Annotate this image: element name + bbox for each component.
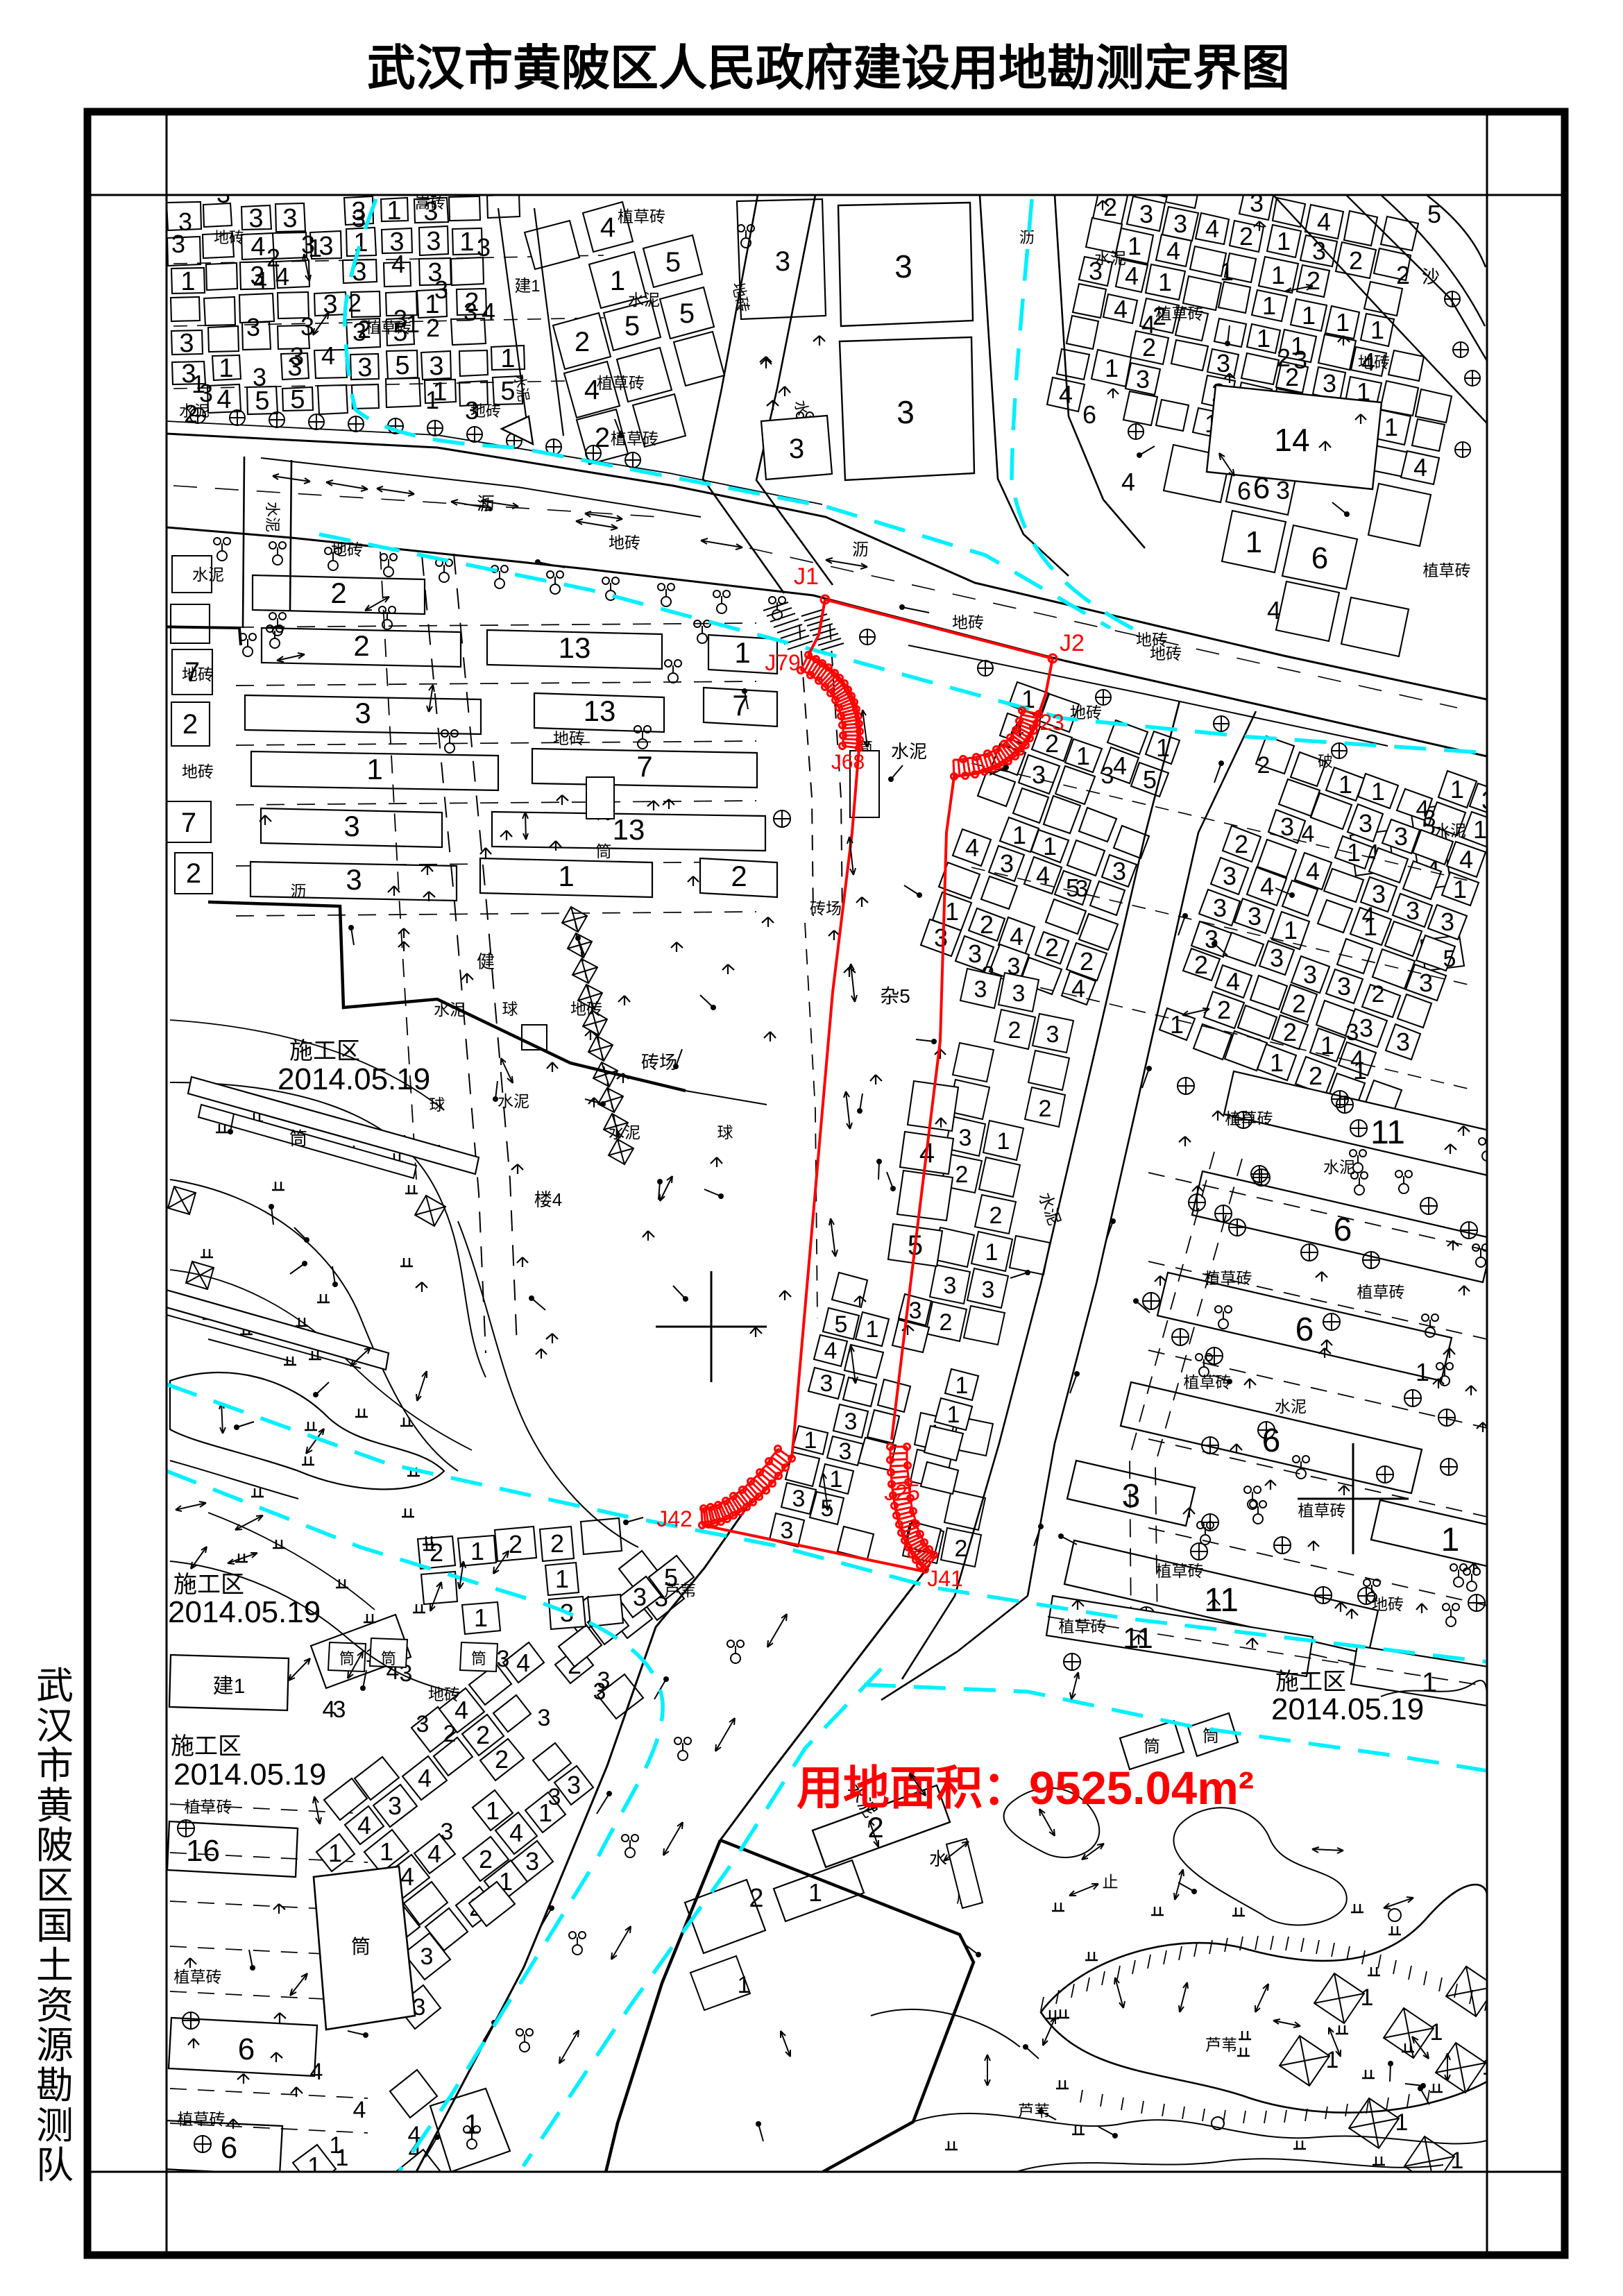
svg-text:陂: 陂: [36, 1825, 74, 1866]
svg-text:2: 2: [443, 1721, 457, 1747]
svg-text:地砖: 地砖: [553, 729, 585, 747]
svg-text:2: 2: [186, 858, 201, 889]
svg-text:4: 4: [509, 1819, 523, 1847]
svg-text:3: 3: [567, 1771, 581, 1799]
svg-text:4: 4: [216, 385, 231, 414]
svg-text:2: 2: [426, 314, 440, 342]
svg-text:2: 2: [1349, 246, 1363, 275]
svg-text:1: 1: [808, 1878, 822, 1907]
svg-text:4: 4: [418, 1764, 432, 1792]
svg-text:3: 3: [388, 1792, 402, 1820]
svg-text:3: 3: [593, 1678, 606, 1705]
svg-text:2014.05.19: 2014.05.19: [278, 1062, 430, 1096]
svg-text:3: 3: [1139, 200, 1153, 228]
svg-text:球: 球: [717, 1123, 733, 1141]
svg-text:建1: 建1: [514, 277, 540, 296]
svg-text:砖场: 砖场: [810, 899, 842, 917]
svg-text:3: 3: [290, 342, 304, 371]
svg-text:2: 2: [940, 1309, 953, 1336]
svg-text:植草砖: 植草砖: [174, 1968, 222, 1986]
svg-text:4: 4: [1362, 903, 1375, 929]
svg-text:4: 4: [516, 1649, 530, 1677]
svg-text:3: 3: [934, 924, 948, 952]
svg-text:2: 2: [1309, 1062, 1323, 1090]
svg-text:4: 4: [391, 250, 405, 278]
svg-text:2014.05.19: 2014.05.19: [1271, 1692, 1424, 1726]
svg-text:4: 4: [1071, 974, 1085, 1003]
svg-text:3: 3: [944, 1273, 957, 1299]
svg-text:4: 4: [1306, 857, 1320, 885]
svg-text:地砖: 地砖: [428, 1685, 460, 1703]
svg-text:3: 3: [1000, 849, 1014, 878]
svg-text:止: 止: [1103, 1873, 1119, 1891]
svg-text:4: 4: [1141, 310, 1155, 339]
svg-text:4: 4: [1459, 845, 1473, 874]
svg-text:3: 3: [968, 939, 982, 968]
svg-text:1: 1: [459, 228, 474, 257]
svg-text:2: 2: [476, 1721, 490, 1749]
svg-text:3: 3: [781, 1517, 794, 1544]
svg-text:植草砖: 植草砖: [1059, 1617, 1107, 1635]
svg-text:破: 破: [1318, 753, 1333, 770]
svg-text:2: 2: [1008, 1017, 1021, 1044]
svg-text:3: 3: [434, 275, 448, 304]
svg-text:2: 2: [495, 1745, 509, 1774]
svg-text:4: 4: [357, 1811, 371, 1839]
svg-text:2: 2: [731, 860, 747, 892]
svg-text:2: 2: [1039, 1096, 1052, 1122]
svg-text:1: 1: [180, 267, 195, 296]
svg-text:13: 13: [613, 813, 645, 846]
svg-text:2: 2: [1080, 947, 1094, 976]
svg-text:植草砖: 植草砖: [1298, 1502, 1346, 1520]
svg-text:2: 2: [182, 709, 198, 740]
svg-text:勘: 勘: [36, 2065, 74, 2107]
svg-text:水泥: 水泥: [891, 741, 927, 762]
svg-text:地砖: 地砖: [182, 763, 214, 781]
svg-text:3: 3: [548, 1784, 561, 1810]
svg-text:3: 3: [839, 1438, 852, 1465]
svg-text:地砖: 地砖: [214, 229, 244, 246]
svg-text:1: 1: [474, 1604, 488, 1632]
svg-text:1: 1: [1012, 821, 1026, 849]
svg-text:1: 1: [1270, 1048, 1284, 1077]
svg-text:1: 1: [1416, 1358, 1429, 1386]
svg-text:筒: 筒: [339, 1650, 355, 1667]
svg-text:3: 3: [909, 1298, 922, 1324]
svg-text:楼4: 楼4: [534, 1189, 562, 1210]
svg-text:3: 3: [1032, 760, 1046, 789]
svg-text:水泥: 水泥: [628, 291, 660, 309]
svg-text:杂5: 杂5: [880, 985, 910, 1007]
svg-text:2: 2: [353, 629, 369, 662]
svg-text:2: 2: [1277, 343, 1291, 372]
svg-text:5: 5: [835, 1311, 848, 1338]
svg-text:3: 3: [1323, 369, 1336, 398]
svg-text:植草砖: 植草砖: [611, 430, 658, 448]
svg-text:1: 1: [1158, 268, 1172, 296]
svg-text:1: 1: [610, 266, 625, 296]
svg-text:J1: J1: [794, 563, 819, 590]
svg-text:14: 14: [1274, 422, 1309, 458]
svg-text:2: 2: [1292, 989, 1306, 1018]
svg-text:1: 1: [219, 354, 233, 383]
svg-text:3: 3: [346, 863, 362, 896]
svg-text:植草砖: 植草砖: [1184, 1373, 1232, 1391]
svg-text:3: 3: [1396, 1028, 1410, 1056]
svg-text:3: 3: [1012, 980, 1026, 1007]
svg-text:3: 3: [1337, 972, 1351, 1001]
svg-text:4: 4: [321, 341, 335, 370]
svg-text:施工区: 施工区: [1275, 1669, 1346, 1695]
svg-text:1: 1: [985, 1239, 999, 1266]
svg-text:4: 4: [353, 2097, 366, 2123]
svg-text:1: 1: [945, 897, 959, 926]
svg-text:3: 3: [1419, 969, 1433, 997]
svg-text:1: 1: [1257, 324, 1271, 352]
svg-text:J25: J25: [884, 1480, 920, 1505]
svg-text:3: 3: [1293, 346, 1307, 374]
svg-text:3: 3: [355, 697, 371, 729]
svg-text:武: 武: [36, 1665, 74, 1707]
svg-text:1: 1: [1450, 775, 1464, 803]
svg-text:3: 3: [1173, 210, 1187, 238]
svg-text:1: 1: [486, 1796, 500, 1825]
svg-text:黄: 黄: [36, 1785, 74, 1827]
svg-text:3: 3: [1303, 960, 1317, 989]
svg-text:砖场: 砖场: [641, 1052, 677, 1073]
svg-text:4: 4: [1166, 237, 1180, 265]
svg-text:1: 1: [734, 636, 750, 669]
svg-text:3: 3: [248, 204, 263, 233]
svg-text:J23: J23: [1028, 710, 1064, 735]
svg-text:6: 6: [1295, 1311, 1314, 1348]
svg-text:4: 4: [824, 1338, 838, 1364]
svg-text:1: 1: [386, 196, 401, 226]
svg-text:11: 11: [1370, 1114, 1405, 1151]
svg-text:水泥: 水泥: [1434, 822, 1466, 840]
svg-text:1: 1: [1339, 770, 1352, 799]
svg-text:3: 3: [959, 1125, 972, 1151]
svg-text:1: 1: [1220, 257, 1234, 286]
svg-text:1: 1: [1105, 354, 1119, 382]
svg-text:1: 1: [1353, 1056, 1367, 1085]
svg-text:2: 2: [749, 1884, 763, 1913]
svg-text:土: 土: [36, 1945, 74, 1987]
svg-text:3: 3: [441, 1819, 454, 1845]
svg-text:3: 3: [282, 204, 297, 233]
svg-text:1: 1: [1170, 1010, 1184, 1039]
svg-text:3: 3: [633, 1583, 647, 1611]
svg-text:1: 1: [1430, 2019, 1443, 2046]
svg-text:6: 6: [221, 2131, 237, 2165]
svg-text:测: 测: [36, 2105, 74, 2147]
svg-text:1: 1: [1277, 227, 1291, 255]
svg-text:4: 4: [1260, 872, 1274, 901]
svg-text:1: 1: [1384, 413, 1398, 441]
svg-text:J79: J79: [765, 650, 801, 675]
svg-text:植草砖: 植草砖: [618, 207, 665, 226]
svg-text:芦苇: 芦苇: [1018, 2102, 1050, 2120]
svg-text:11: 11: [1204, 1582, 1239, 1619]
svg-text:队: 队: [36, 2145, 74, 2186]
svg-text:健: 健: [477, 951, 495, 972]
svg-text:16: 16: [186, 1834, 220, 1868]
svg-text:4: 4: [1114, 295, 1128, 323]
svg-text:沥: 沥: [852, 541, 869, 559]
svg-text:水泥: 水泥: [609, 1123, 640, 1141]
svg-text:2: 2: [980, 910, 994, 939]
svg-text:2: 2: [955, 1162, 969, 1188]
svg-text:3: 3: [1406, 896, 1420, 925]
svg-text:3: 3: [1346, 1019, 1359, 1046]
svg-text:水泥: 水泥: [1094, 249, 1126, 267]
svg-text:1: 1: [1043, 832, 1057, 860]
svg-text:地砖: 地砖: [1358, 353, 1390, 371]
svg-text:3: 3: [1136, 365, 1150, 393]
svg-text:筒: 筒: [289, 1128, 307, 1149]
svg-text:3: 3: [420, 1944, 434, 1970]
svg-text:2: 2: [1217, 996, 1231, 1024]
svg-text:2: 2: [1307, 266, 1320, 295]
svg-text:7: 7: [636, 750, 652, 783]
svg-text:7: 7: [181, 808, 196, 838]
svg-text:2014.05.19: 2014.05.19: [168, 1595, 321, 1629]
svg-text:2: 2: [575, 327, 590, 357]
svg-text:植草砖: 植草砖: [1156, 305, 1204, 323]
svg-text:沥: 沥: [1019, 229, 1035, 246]
svg-text:植草砖: 植草砖: [185, 1798, 232, 1816]
svg-text:4: 4: [965, 833, 979, 862]
svg-text:4: 4: [1121, 468, 1135, 496]
svg-text:2: 2: [1234, 830, 1248, 858]
svg-text:3: 3: [416, 1711, 430, 1737]
svg-text:4: 4: [1302, 821, 1315, 847]
svg-text:5: 5: [1143, 765, 1157, 794]
svg-text:区: 区: [36, 1865, 74, 1907]
svg-text:4: 4: [1267, 596, 1281, 624]
svg-text:1: 1: [380, 1837, 393, 1866]
svg-text:汉: 汉: [36, 1706, 74, 1747]
svg-text:3: 3: [426, 227, 441, 256]
svg-text:3: 3: [789, 434, 804, 464]
svg-text:1: 1: [997, 1128, 1010, 1155]
svg-text:6: 6: [1262, 1422, 1281, 1459]
svg-text:2: 2: [1045, 933, 1059, 962]
svg-text:用地面积：9525.04m²: 用地面积：9525.04m²: [797, 1762, 1254, 1814]
svg-text:J41: J41: [927, 1566, 963, 1591]
svg-text:J68: J68: [831, 751, 865, 774]
svg-text:球: 球: [502, 1000, 518, 1018]
svg-text:3: 3: [820, 1370, 833, 1397]
svg-text:2014.05.19: 2014.05.19: [173, 1758, 326, 1792]
svg-text:3: 3: [792, 1486, 806, 1512]
svg-text:3: 3: [1046, 1021, 1060, 1048]
svg-text:1: 1: [558, 860, 574, 892]
svg-text:资: 资: [36, 1985, 74, 2027]
svg-text:筒: 筒: [471, 1650, 486, 1667]
svg-text:植草砖: 植草砖: [366, 319, 411, 337]
svg-text:水泥: 水泥: [192, 566, 224, 584]
svg-text:3: 3: [464, 298, 477, 326]
svg-text:1: 1: [555, 1565, 569, 1593]
svg-text:2: 2: [1103, 193, 1117, 221]
svg-text:1: 1: [1128, 232, 1141, 260]
svg-text:1: 1: [1451, 2148, 1464, 2174]
svg-text:4: 4: [1413, 453, 1427, 482]
svg-text:1: 1: [1395, 2109, 1409, 2136]
svg-text:4: 4: [1205, 214, 1219, 243]
svg-text:1: 1: [1336, 308, 1350, 337]
svg-text:2: 2: [1372, 981, 1385, 1007]
svg-text:3: 3: [1122, 1478, 1141, 1515]
svg-text:1: 1: [866, 1316, 879, 1343]
svg-text:5: 5: [395, 351, 409, 380]
svg-text:水泥: 水泥: [1275, 1397, 1307, 1415]
svg-text:1: 1: [328, 1839, 342, 1867]
svg-text:1: 1: [1246, 525, 1262, 559]
svg-text:地砖: 地砖: [609, 534, 640, 552]
svg-text:地砖: 地砖: [470, 402, 501, 420]
svg-text:4: 4: [600, 212, 615, 243]
svg-text:6: 6: [1082, 400, 1096, 429]
svg-text:1: 1: [738, 1972, 751, 1998]
svg-text:1: 1: [1262, 291, 1276, 320]
svg-text:建1: 建1: [213, 1675, 246, 1698]
svg-text:3: 3: [1223, 862, 1237, 890]
svg-text:4: 4: [1226, 967, 1240, 996]
svg-text:3: 3: [897, 394, 915, 430]
svg-text:2: 2: [1194, 951, 1208, 979]
svg-text:3: 3: [429, 352, 443, 381]
svg-text:6: 6: [238, 2032, 255, 2066]
svg-text:地砖: 地砖: [331, 541, 363, 559]
svg-text:植草砖: 植草砖: [1357, 1283, 1405, 1301]
svg-text:水泥: 水泥: [498, 1092, 529, 1110]
svg-text:1: 1: [1361, 1984, 1374, 2011]
svg-text:3: 3: [1312, 237, 1326, 265]
svg-text:植草砖: 植草砖: [1423, 561, 1471, 579]
svg-text:沙: 沙: [1422, 266, 1440, 287]
svg-text:3: 3: [171, 230, 185, 258]
svg-text:市: 市: [36, 1745, 74, 1787]
svg-text:3: 3: [343, 810, 359, 842]
svg-text:4: 4: [1113, 751, 1127, 780]
svg-text:3: 3: [1216, 349, 1230, 377]
svg-text:4: 4: [250, 232, 265, 262]
svg-text:施工区: 施工区: [171, 1733, 241, 1760]
svg-text:3: 3: [1248, 902, 1261, 930]
svg-text:1: 1: [1271, 261, 1285, 289]
svg-text:3: 3: [525, 1847, 539, 1876]
svg-text:3: 3: [179, 329, 194, 358]
svg-text:水泥: 水泥: [1323, 1158, 1355, 1176]
svg-text:3: 3: [497, 1646, 510, 1672]
svg-text:4: 4: [1010, 922, 1023, 951]
svg-text:3: 3: [1394, 822, 1408, 851]
svg-text:1: 1: [830, 1466, 843, 1493]
svg-text:1: 1: [425, 386, 439, 414]
svg-text:1: 1: [470, 1537, 484, 1565]
svg-text:4: 4: [323, 1697, 336, 1723]
svg-text:1: 1: [947, 1402, 960, 1428]
svg-text:J2: J2: [1060, 630, 1085, 656]
svg-text:3: 3: [894, 248, 912, 284]
svg-text:植草砖: 植草砖: [597, 374, 645, 392]
svg-text:2: 2: [1283, 1018, 1297, 1046]
svg-text:施工区: 施工区: [289, 1038, 360, 1064]
svg-text:沥: 沥: [291, 882, 307, 900]
svg-text:地砖: 地砖: [1372, 1595, 1404, 1613]
svg-text:1: 1: [804, 1427, 817, 1454]
svg-text:筒: 筒: [1144, 1737, 1160, 1756]
svg-text:3: 3: [1101, 763, 1114, 789]
svg-text:植草砖: 植草砖: [1156, 1562, 1204, 1580]
svg-text:3: 3: [357, 353, 372, 382]
svg-text:7: 7: [732, 689, 748, 722]
svg-text:筒: 筒: [596, 842, 612, 860]
svg-text:2: 2: [330, 577, 346, 609]
svg-text:1: 1: [1326, 2047, 1339, 2073]
svg-text:2: 2: [1239, 222, 1253, 250]
svg-text:2: 2: [550, 1529, 564, 1558]
svg-text:1: 1: [1284, 916, 1298, 944]
svg-text:3: 3: [775, 246, 790, 277]
svg-text:2: 2: [509, 1530, 522, 1558]
svg-text:1: 1: [366, 753, 382, 785]
svg-text:国: 国: [36, 1905, 74, 1947]
svg-text:地砖: 地砖: [182, 665, 214, 683]
svg-text:1: 1: [336, 2145, 349, 2171]
svg-text:嵩砖: 嵩砖: [415, 194, 445, 212]
svg-text:1: 1: [955, 1372, 969, 1399]
svg-text:施工区: 施工区: [173, 1572, 244, 1598]
svg-text:3: 3: [1213, 894, 1227, 922]
svg-text:1: 1: [1076, 742, 1090, 770]
svg-text:4: 4: [482, 298, 495, 326]
svg-text:3: 3: [982, 1277, 995, 1303]
svg-text:3: 3: [974, 976, 987, 1003]
svg-text:1: 1: [1473, 815, 1487, 844]
svg-text:3: 3: [538, 1705, 551, 1731]
svg-text:2: 2: [595, 423, 610, 453]
svg-text:筒: 筒: [351, 1936, 371, 1957]
svg-text:13: 13: [559, 631, 591, 664]
svg-text:2: 2: [1257, 752, 1271, 779]
svg-text:武汉市黄陂区人民政府建设用地勘测定界图: 武汉市黄陂区人民政府建设用地勘测定界图: [367, 41, 1290, 95]
svg-text:2: 2: [1396, 261, 1410, 289]
svg-text:4: 4: [427, 1839, 441, 1868]
svg-text:5: 5: [290, 385, 305, 414]
svg-text:13: 13: [584, 695, 616, 727]
svg-text:4: 4: [310, 2059, 323, 2085]
svg-text:3: 3: [1205, 925, 1218, 953]
svg-text:6: 6: [1237, 477, 1251, 505]
svg-text:3: 3: [1359, 809, 1373, 837]
svg-text:2: 2: [479, 1845, 493, 1873]
svg-text:植草砖: 植草砖: [178, 2110, 226, 2128]
svg-text:3: 3: [1112, 857, 1126, 885]
svg-text:4: 4: [253, 266, 267, 295]
svg-text:3: 3: [844, 1409, 858, 1435]
svg-text:5: 5: [665, 247, 681, 278]
svg-text:1: 1: [1370, 316, 1384, 344]
svg-text:3: 3: [1076, 876, 1089, 902]
svg-text:植草砖: 植草砖: [1205, 1269, 1252, 1287]
svg-text:6: 6: [1311, 541, 1328, 575]
svg-text:1: 1: [1302, 301, 1316, 330]
svg-text:3: 3: [300, 312, 314, 341]
